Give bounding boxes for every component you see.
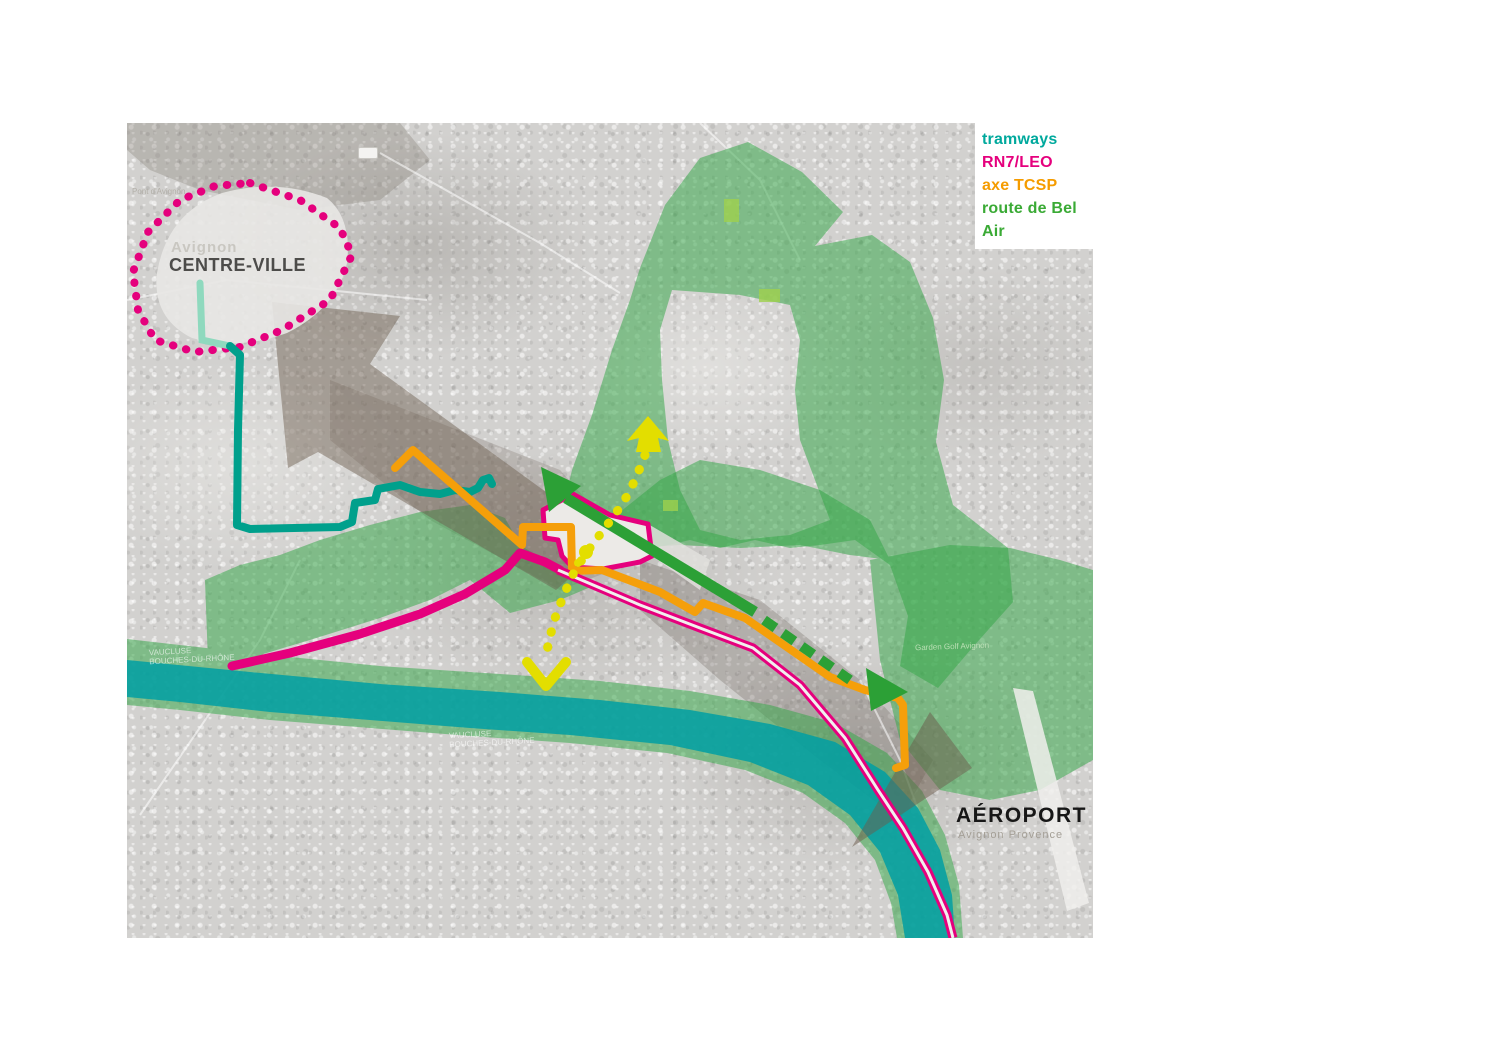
- map-overlay-graphics: [127, 123, 1093, 938]
- legend-item-route-bel-air: route de Bel Air: [982, 197, 1093, 243]
- label-avignon-faint: Avignon: [171, 239, 237, 256]
- study-axis-node-large: [579, 545, 593, 559]
- label-pont-avignon: Pont d'Avignon: [132, 187, 185, 196]
- road-number-badge: [358, 147, 378, 159]
- label-aeroport-sub: Avignon Provence: [958, 829, 1063, 841]
- map-image: Avignon CENTRE-VILLE AÉROPORT Avignon Pr…: [127, 123, 1093, 938]
- map-legend: tramways RN7/LEO axe TCSP route de Bel A…: [975, 123, 1093, 249]
- label-aeroport: AÉROPORT: [956, 804, 1087, 828]
- legend-item-tramways: tramways: [982, 128, 1093, 151]
- study-axis-node-small: [574, 559, 582, 567]
- legend-item-axe-tcsp: axe TCSP: [982, 174, 1093, 197]
- legend-item-rn7-leo: RN7/LEO: [982, 151, 1093, 174]
- label-centre-ville: CENTRE-VILLE: [169, 255, 306, 276]
- document-page: Avignon CENTRE-VILLE AÉROPORT Avignon Pr…: [0, 0, 1497, 1058]
